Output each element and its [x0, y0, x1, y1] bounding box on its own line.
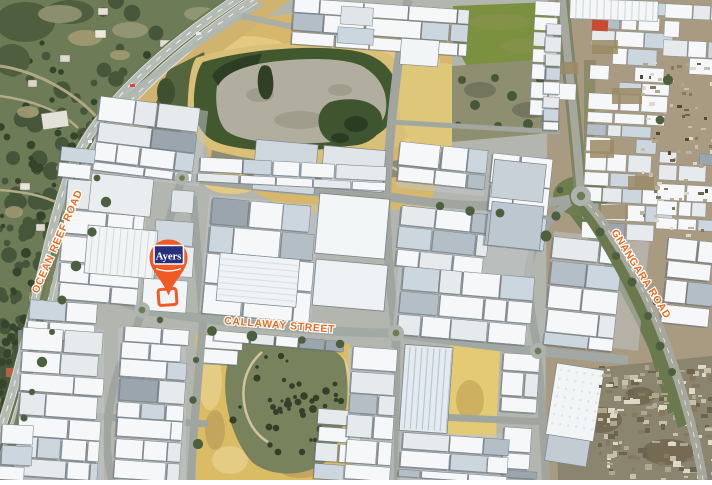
svg-text:Ayers: Ayers [156, 252, 181, 263]
